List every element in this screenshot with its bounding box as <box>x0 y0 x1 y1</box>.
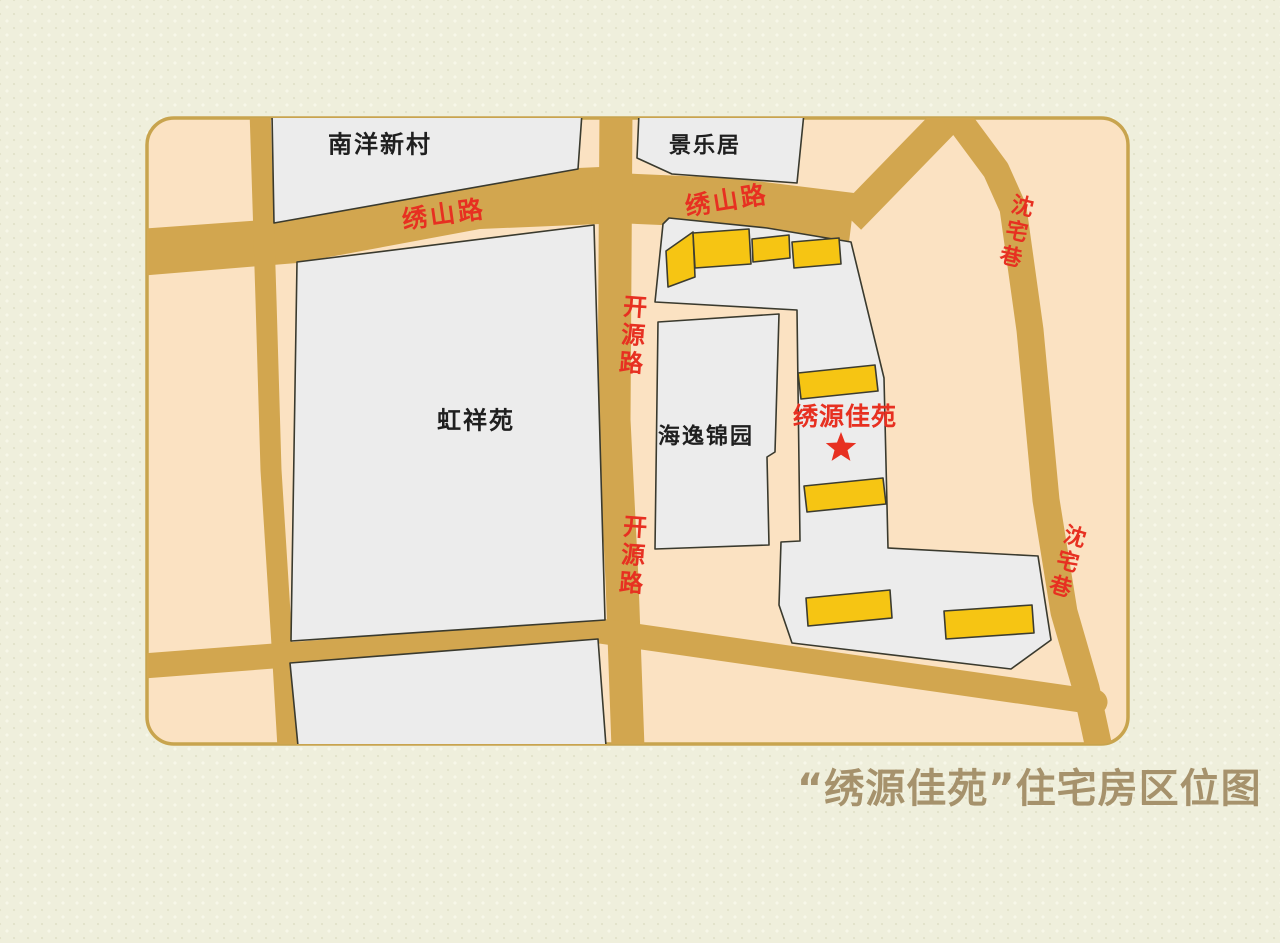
building <box>944 605 1034 639</box>
landmark-label-xiuyuanjiayuan: 绣源佳苑 <box>793 404 897 430</box>
road-kaiyuan <box>614 110 628 748</box>
road-label-kaiyuan-lower: 开源路 <box>615 513 646 599</box>
page-title: “绣源佳苑”住宅房区位图 <box>797 756 1262 814</box>
area-label-hongxiangyuan: 虹祥苑 <box>437 408 515 433</box>
location-map-page: 南洋新村 景乐居 虹祥苑 海逸锦园 绣山路 绣山路 开源路 开源路 沈宅巷 沈宅… <box>0 0 1280 943</box>
building <box>693 229 751 268</box>
area-label-jinglejv: 景乐居 <box>669 134 741 157</box>
building <box>752 235 790 262</box>
road-label-kaiyuan-upper: 开源路 <box>615 293 646 379</box>
area-label-haiyijinyuan: 海逸锦园 <box>658 425 754 448</box>
building <box>792 238 841 268</box>
area-label-nanyangxincun: 南洋新村 <box>328 132 432 157</box>
